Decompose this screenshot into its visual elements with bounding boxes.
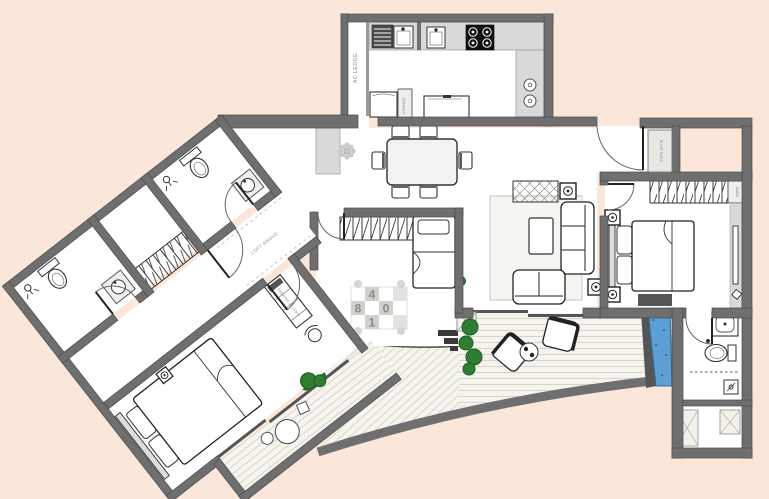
wall (544, 14, 553, 126)
dining-table-top (387, 139, 457, 185)
sliding-door-panel (528, 314, 583, 317)
drainboard-icon (372, 25, 393, 48)
wall (712, 308, 752, 318)
wall (683, 400, 752, 406)
pillow (418, 220, 449, 234)
wall (455, 208, 463, 313)
wall (672, 448, 752, 458)
floor-plan: STORAGE AC LEDGE (0, 0, 769, 499)
wall (378, 117, 597, 126)
storage-label: STORAGE (402, 97, 406, 114)
hob-icon (466, 25, 494, 50)
wardrobe-end-unit: WARD (728, 181, 744, 203)
ac-ledge-label: AC LEDGE (353, 53, 359, 83)
wardrobe-label: WARD (735, 187, 739, 198)
outdoor-chair (542, 316, 579, 353)
kids-bedroom: 4 8 0 1 (340, 216, 458, 351)
second-sink-icon (427, 27, 445, 48)
wall (742, 126, 752, 458)
dining-side-counter (316, 128, 340, 174)
toilet-icon (705, 345, 736, 362)
rug-number: 0 (383, 302, 390, 316)
wall (341, 14, 553, 22)
double-bed (609, 220, 694, 292)
wall (366, 22, 369, 116)
outdoor-table (520, 343, 538, 361)
sofa-3seat (561, 202, 594, 274)
shower-icon (724, 380, 738, 394)
sliding-door-panel (473, 310, 528, 313)
pillow (617, 256, 632, 284)
kids-wardrobe (340, 217, 416, 240)
floor-plan-drawing: STORAGE AC LEDGE (0, 0, 769, 499)
side-table-lamp-icon (560, 183, 576, 199)
wall (341, 14, 348, 120)
rug-number: 8 (355, 302, 362, 316)
sofa-2seat (513, 270, 565, 304)
wall (600, 181, 608, 185)
fridge-icon (370, 92, 397, 117)
coffee-table (529, 218, 553, 254)
wall (640, 118, 752, 128)
tv-console (513, 181, 558, 202)
wall (600, 172, 752, 181)
wall (344, 208, 463, 217)
dresser (638, 294, 672, 306)
wardrobe (650, 181, 728, 203)
wall (672, 308, 683, 458)
window (733, 226, 738, 284)
wall (218, 115, 358, 128)
shoe-rack: SHOE RACK (648, 130, 672, 172)
kitchen-partition-wall (417, 22, 421, 50)
shoe-rack-label: SHOE RACK (659, 140, 663, 163)
kids-bed (413, 216, 455, 288)
rug-number: 1 (369, 316, 376, 330)
headboard (609, 220, 615, 292)
kitchen-sink-icon (394, 26, 413, 48)
pillow (617, 226, 632, 254)
mattress (632, 221, 694, 291)
wall (600, 216, 608, 313)
water-feature (641, 308, 672, 388)
wall (583, 308, 600, 318)
rug-number: 4 (369, 288, 376, 302)
